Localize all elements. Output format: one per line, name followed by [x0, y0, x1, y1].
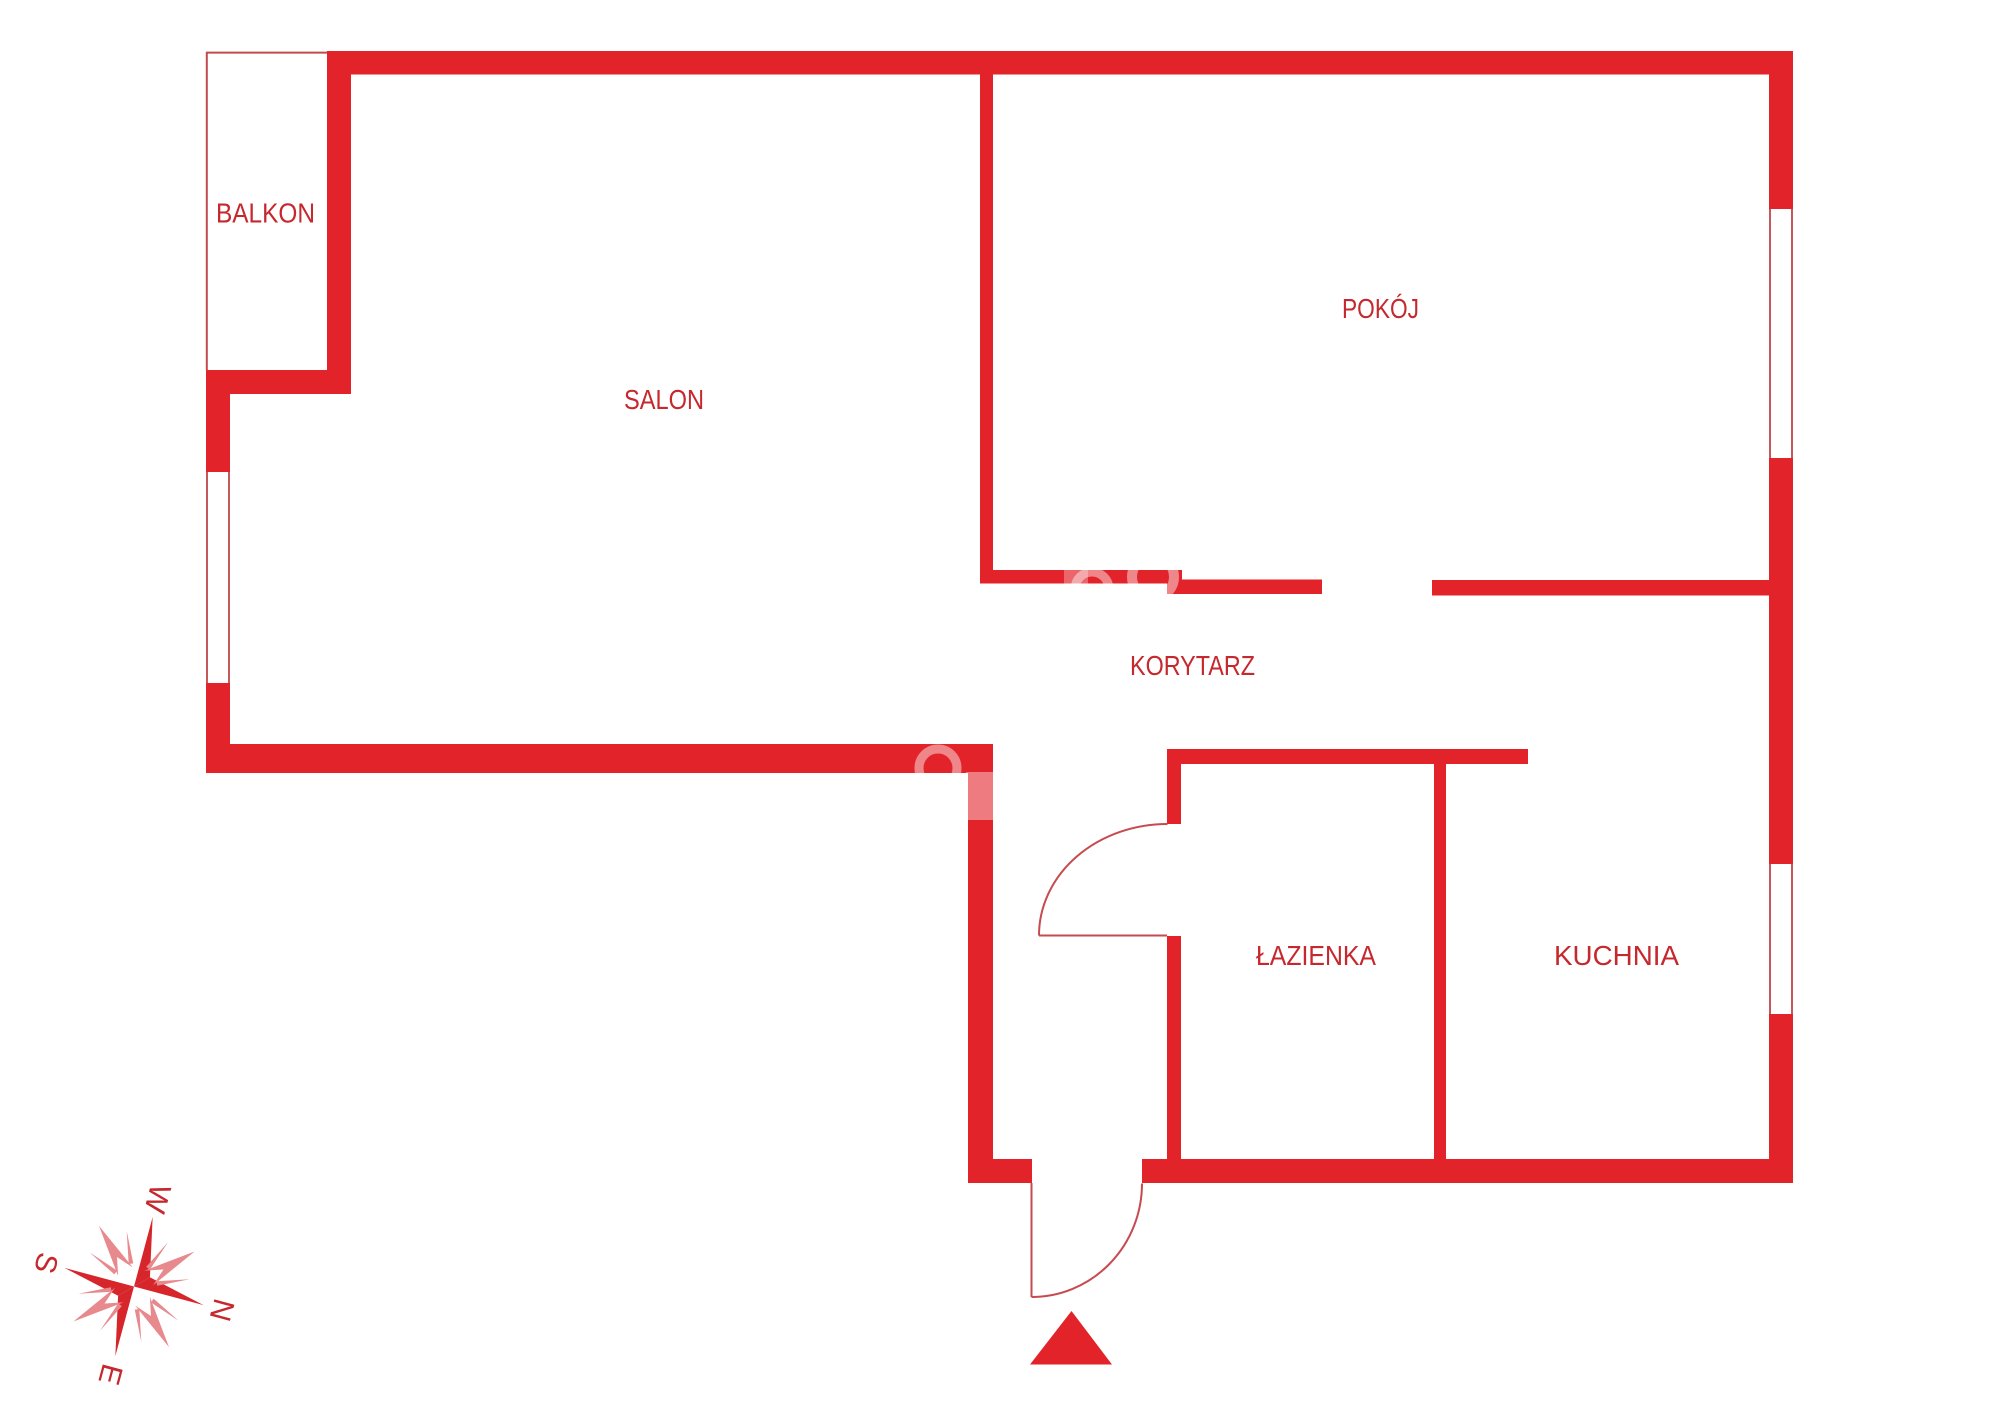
svg-text:SALON: SALON — [624, 384, 704, 415]
svg-text:POKÓJ: POKÓJ — [1342, 293, 1419, 324]
svg-text:BALKON: BALKON — [216, 198, 315, 229]
svg-text:KUCHNIA: KUCHNIA — [1554, 940, 1679, 971]
svg-text:KORYTARZ: KORYTARZ — [1130, 650, 1255, 681]
svg-text:ŁAZIENKA: ŁAZIENKA — [1256, 940, 1376, 971]
